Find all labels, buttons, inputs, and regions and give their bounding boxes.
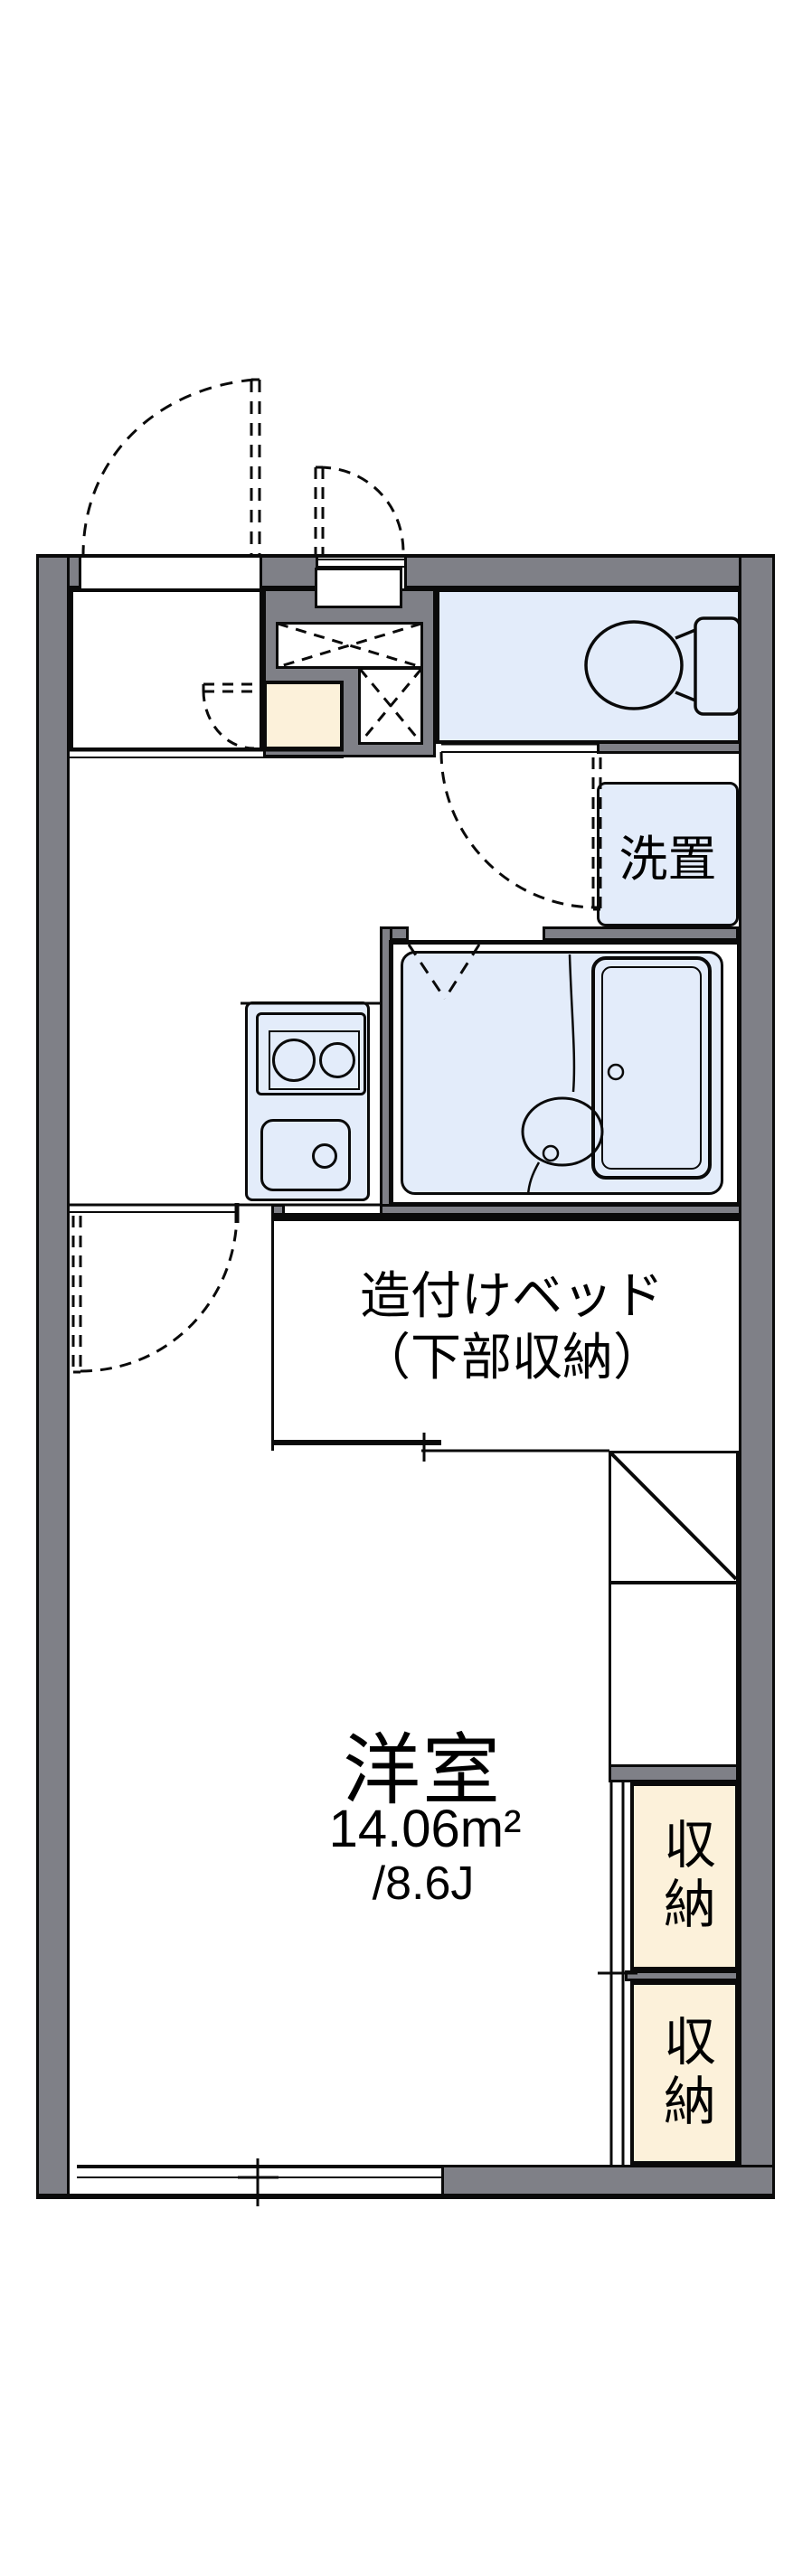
toilet-door-swing-icon: [441, 752, 600, 909]
closet-2: 収納: [630, 1981, 739, 2165]
kitchen-sink-icon: [260, 1119, 351, 1191]
laundry-space: 洗置: [597, 782, 739, 926]
storage-door-threshold: [318, 559, 404, 567]
bathroom-floor: [401, 951, 723, 1195]
room-door-swing-icon: [73, 1212, 237, 1372]
wall-bottom-right: [441, 2165, 775, 2197]
sliding-window-icon: [77, 2158, 443, 2206]
stove-burner-right-icon: [319, 1042, 355, 1078]
upper-storage-box-v: [358, 667, 423, 745]
entrance-step-floor: [263, 681, 344, 750]
room-area-m2-label: 14.06m²: [298, 1799, 552, 1859]
room-area-jo-label: /8.6J: [298, 1857, 548, 1911]
laundry-label: 洗置: [619, 819, 717, 890]
entrance-hall: [70, 588, 263, 751]
bed-label: 造付けベッド （下部収納）: [285, 1265, 739, 1389]
wall-bath-top: [543, 926, 739, 941]
wall-top-mid: [260, 554, 318, 588]
bed-label-line1: 造付けベッド: [285, 1265, 739, 1327]
toilet-room: [436, 588, 741, 744]
closet-2-label: 収納: [647, 2014, 722, 2133]
closet-1: 収納: [630, 1782, 739, 1970]
floor-plan: 洗置 造付けベッド （下部収納） 収納 収納 洋室 14.06m² /8.6J: [0, 0, 812, 2576]
open-shelf-space: [609, 1582, 739, 1767]
wall-closet-divider: [625, 1970, 739, 1981]
wall-above-closet: [609, 1764, 739, 1782]
wall-top-right: [404, 554, 775, 588]
outside-storage-threshold: [315, 568, 402, 608]
refrigerator-space: [609, 1451, 739, 1584]
closet-1-label: 収納: [647, 1817, 722, 1936]
upper-storage-box-h: [276, 622, 423, 669]
entrance-door-swing-icon: [83, 380, 260, 555]
wall-right: [739, 554, 775, 2197]
wall-left: [36, 554, 70, 2197]
bed-label-line2: （下部収納）: [285, 1327, 739, 1388]
storage-door-swing-icon: [316, 467, 403, 554]
sink-drain-icon: [312, 1143, 337, 1169]
stove-burner-left-icon: [272, 1039, 316, 1082]
